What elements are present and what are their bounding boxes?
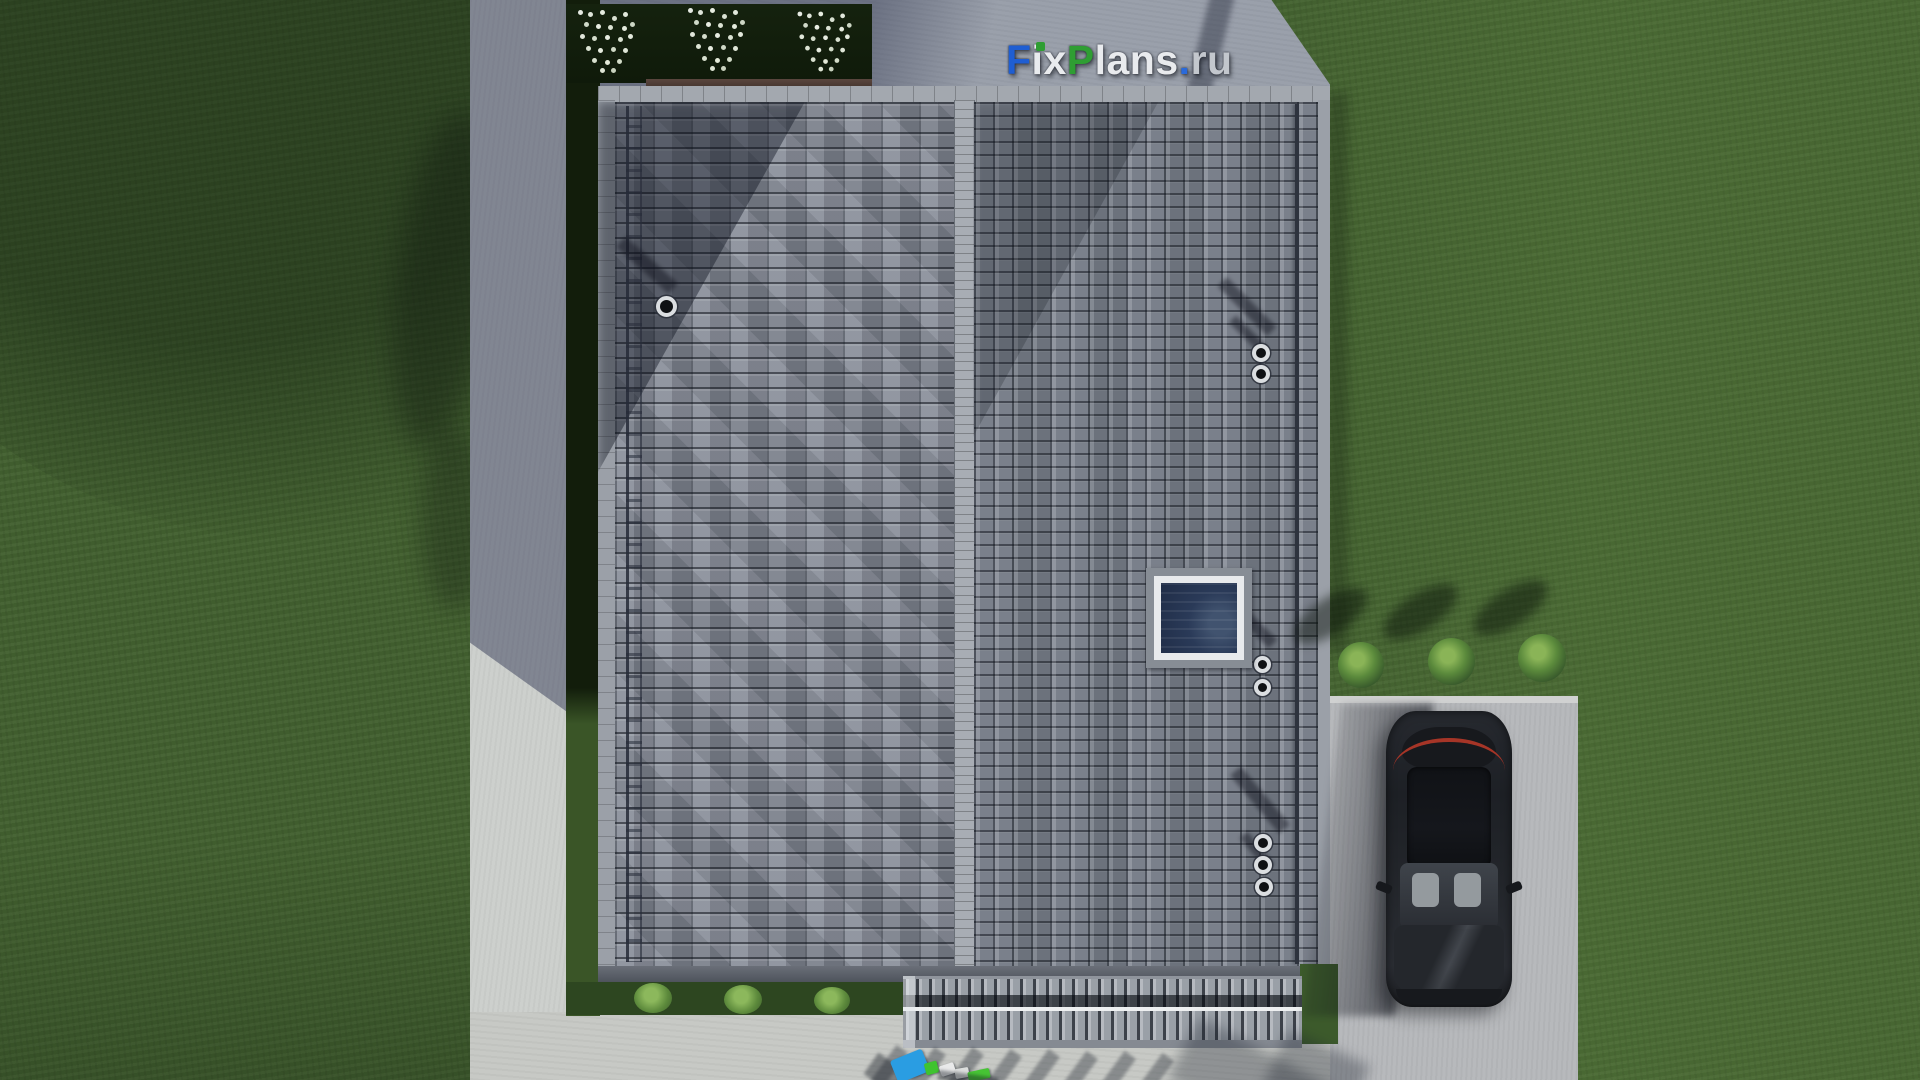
- roof-edge-shadow: [1328, 92, 1348, 652]
- aerial-house-render: FixPlans.ru: [0, 0, 1920, 1080]
- pergola-left-post: [903, 976, 915, 1048]
- logo-segment-lans: lans: [1095, 37, 1179, 83]
- parked-car: [1386, 711, 1512, 1007]
- roof-ladder: [626, 106, 642, 962]
- roof-vent-pipe: [1254, 834, 1272, 852]
- rain-drain-line: [1295, 104, 1299, 964]
- left-walkway-shadow: [470, 0, 570, 714]
- logo-segment-dot: .: [1179, 37, 1191, 83]
- car-seat-left: [1412, 873, 1439, 907]
- side-garden-strip-shadow: [566, 0, 600, 724]
- flower-dots: [578, 10, 583, 15]
- hedge-bush: [724, 985, 762, 1014]
- white-flower-cluster: [798, 12, 855, 73]
- white-flower-cluster: [688, 8, 748, 72]
- logo-segment-p: P: [1067, 37, 1095, 83]
- roof-vent-pipe: [1252, 344, 1270, 362]
- roof-vent-pipe: [1254, 856, 1272, 874]
- shrub: [1518, 634, 1566, 682]
- louvered-pergola: [903, 976, 1302, 1047]
- flower-dots: [688, 8, 693, 13]
- car-seat-right: [1454, 873, 1481, 907]
- roof-vent-pipe: [1252, 365, 1270, 383]
- white-flower-cluster: [578, 10, 638, 74]
- car-panoramic-roof: [1407, 767, 1491, 869]
- logo-i-dot: [1036, 42, 1045, 51]
- logo-segment-f: F: [1006, 37, 1032, 83]
- flower-dots: [798, 12, 803, 17]
- roof-skylight-reflection: [1161, 583, 1237, 653]
- pergola-white-beam: [903, 1007, 1302, 1011]
- hedge-bush: [814, 987, 850, 1014]
- lawn-shadow-bottom-left: [0, 840, 480, 1080]
- shrub: [1338, 642, 1384, 688]
- roof-vent-pipe: [1254, 679, 1271, 696]
- roof-vent-pipe: [1255, 878, 1273, 896]
- roof-vent-pipe: [1254, 656, 1271, 673]
- hedge-bush: [634, 983, 672, 1013]
- car-front-bumper: [1396, 989, 1502, 1003]
- roof-ridge: [954, 100, 975, 968]
- driveway-curb: [1330, 696, 1578, 703]
- car-hood: [1394, 925, 1504, 995]
- shrub: [1428, 638, 1475, 685]
- pergola-top-edge: [903, 976, 1302, 979]
- roof-vent-pipe: [656, 296, 677, 317]
- logo-segment-ru: ru: [1191, 37, 1233, 83]
